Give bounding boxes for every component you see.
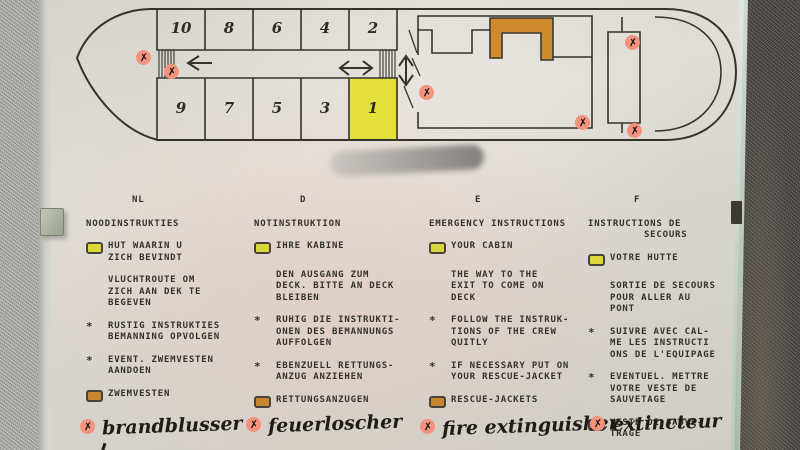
star-bullet: * xyxy=(588,371,595,384)
placard-content: 10 8 6 4 2 9 7 5 3 1 ✗ ✗ ✗ ✗ ✗ ✗ NL NOOD… xyxy=(0,0,800,450)
fire-extinguisher-marker-icon: ✗ xyxy=(575,115,590,130)
handwritten-extinguisher-f: ✗ extincteur xyxy=(590,412,721,434)
instruction-column-nl: NL NOODINSTRUKTIES HUT WAARIN U ZICH BEV… xyxy=(86,195,236,417)
stern-inner-line xyxy=(655,17,721,131)
cabin-location-icon xyxy=(429,242,446,254)
mounting-clip-right xyxy=(731,201,742,224)
instruction-text: RESCUE-JACKETS xyxy=(451,395,538,413)
instruction-text: THE WAY TO THE EXIT TO COME ON DECK xyxy=(451,270,544,305)
instruction-text: RUSTIG INSTRUKTIES BEMANNING OPVOLGEN xyxy=(108,321,220,344)
corridor-arrow-double-icon xyxy=(340,61,372,75)
instruction-column-e: E EMERGENCY INSTRUCTIONS YOUR CABIN THE … xyxy=(429,195,579,423)
life-jacket-icon xyxy=(254,396,271,408)
language-code: F xyxy=(634,195,738,207)
star-bullet: * xyxy=(429,314,436,327)
instruction-text: SORTIE DE SECOURS POUR ALLER AU PONT xyxy=(610,281,716,316)
stairs-right xyxy=(380,50,395,78)
cabin-number: 5 xyxy=(266,99,288,117)
instruction-text: YOUR CABIN xyxy=(451,241,513,259)
handwritten-extinguisher-e: ✗ fire extinguisher xyxy=(420,415,619,437)
fire-extinguisher-marker-icon: ✗ xyxy=(246,417,261,432)
column-title: NOTINSTRUKTION xyxy=(254,219,409,231)
fire-extinguisher-marker-icon: ✗ xyxy=(136,50,151,65)
instruction-text: FOLLOW THE INSTRUK- TIONS OF THE CREW QU… xyxy=(451,315,569,350)
cabin-number: 10 xyxy=(170,19,192,37)
star-bullet: * xyxy=(254,360,261,373)
instruction-text: IF NECESSARY PUT ON YOUR RESCUE-JACKET xyxy=(451,361,569,384)
aft-deckhouse-alcoves xyxy=(418,30,592,57)
handwritten-extinguisher-d: ✗ feuerloscher xyxy=(246,413,402,435)
cabin-location-icon xyxy=(254,242,271,254)
instruction-text: EVENTUEL. METTRE VOTRE VESTE DE SAUVETAG… xyxy=(610,372,710,407)
fire-extinguisher-marker-icon: ✗ xyxy=(80,419,95,434)
fire-extinguisher-marker-icon: ✗ xyxy=(420,419,435,434)
stairway-structure xyxy=(490,18,553,60)
instruction-text: VLUCHTROUTE OM ZICH AAN DEK TE BEGEVEN xyxy=(108,275,201,310)
column-title: EMERGENCY INSTRUCTIONS xyxy=(429,219,579,231)
instruction-text: ZWEMVESTEN xyxy=(108,389,170,407)
fire-extinguisher-marker-icon: ✗ xyxy=(164,64,179,79)
instruction-text: EVENT. ZWEMVESTEN AANDOEN xyxy=(108,355,214,378)
language-code: NL xyxy=(132,195,236,207)
handwriting-cut-off-stroke xyxy=(101,443,107,450)
language-code: D xyxy=(300,195,409,207)
cabin-number: 1 xyxy=(362,99,384,117)
instruction-text: DEN AUSGANG ZUM DECK. BITTE AN DECK BLEI… xyxy=(276,270,394,305)
fire-extinguisher-marker-icon: ✗ xyxy=(419,85,434,100)
cabin-number: 6 xyxy=(266,19,288,37)
star-bullet: * xyxy=(86,354,93,367)
mounting-clip-left xyxy=(40,208,64,236)
column-title: NOODINSTRUKTIES xyxy=(86,219,236,231)
column-title: INSTRUCTIONS DE SECOURS xyxy=(588,219,738,242)
cabin-number: 3 xyxy=(314,99,336,117)
instruction-text: HUT WAARIN U ZICH BEVINDT xyxy=(108,241,183,264)
star-bullet: * xyxy=(86,320,93,333)
cabin-location-icon xyxy=(86,242,103,254)
cabin-number: 9 xyxy=(170,99,192,117)
fire-extinguisher-marker-icon: ✗ xyxy=(625,35,640,50)
instruction-text: RUHIG DIE INSTRUKTI- ONEN DES BEMANNUNGS… xyxy=(276,315,400,350)
life-jacket-icon xyxy=(86,390,103,402)
instruction-text: SUIVRE AVEC CAL- ME LES INSTRUCTI ONS DE… xyxy=(610,327,716,362)
fire-extinguisher-marker-icon: ✗ xyxy=(590,416,605,431)
instruction-column-d: D NOTINSTRUKTION IHRE KABINE DEN AUSGANG… xyxy=(254,195,409,423)
cabin-number: 7 xyxy=(218,99,240,117)
ship-deck-plan xyxy=(0,0,800,165)
cabin-location-icon xyxy=(588,254,605,266)
instruction-text: IHRE KABINE xyxy=(276,241,344,259)
cabin-number: 2 xyxy=(362,19,384,37)
corridor-arrow-left-icon xyxy=(188,56,212,70)
emergency-instructions-placard-photo: 10 8 6 4 2 9 7 5 3 1 ✗ ✗ ✗ ✗ ✗ ✗ NL NOOD… xyxy=(0,0,800,450)
fire-extinguisher-marker-icon: ✗ xyxy=(627,123,642,138)
language-code: E xyxy=(475,195,579,207)
star-bullet: * xyxy=(254,314,261,327)
instruction-text: RETTUNGSANZUGEN xyxy=(276,395,369,413)
star-bullet: * xyxy=(588,326,595,339)
handwritten-extinguisher-nl: ✗ brandblusser xyxy=(80,415,243,437)
instruction-text: EBENZUELL RETTUNGS- ANZUG ANZIEHEN xyxy=(276,361,394,384)
instruction-text: VOTRE HUTTE xyxy=(610,253,678,271)
cabin-number: 4 xyxy=(314,19,336,37)
deck-access-arrow-icon xyxy=(399,56,413,85)
cabin-number: 8 xyxy=(218,19,240,37)
life-jacket-icon xyxy=(429,396,446,408)
star-bullet: * xyxy=(429,360,436,373)
